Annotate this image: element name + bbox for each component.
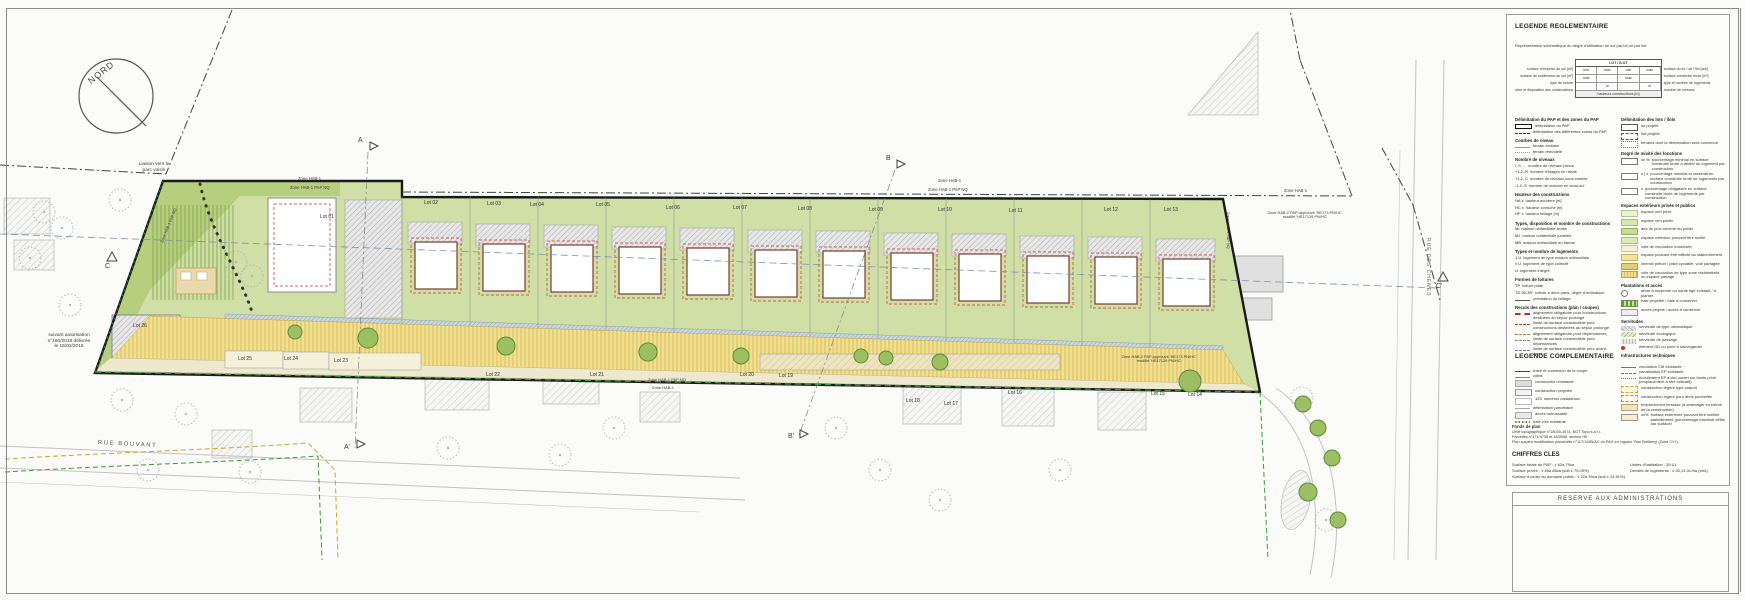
site-plan-sheet: NORD Liaison vers le parc voisin suivant… xyxy=(0,0,1745,600)
sheet-border-outer xyxy=(1740,8,1743,592)
sheet-border xyxy=(6,8,1739,594)
